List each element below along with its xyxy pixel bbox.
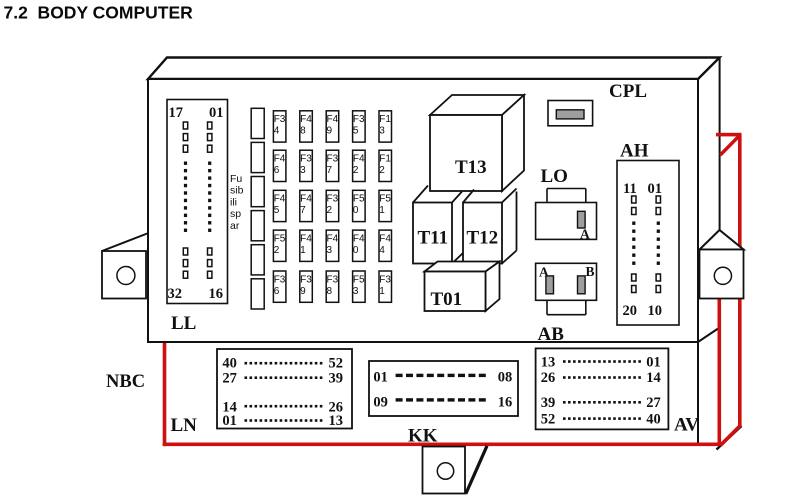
svg-text:T11: T11 — [418, 228, 449, 249]
svg-text:01: 01 — [222, 413, 237, 429]
svg-text:ar: ar — [230, 220, 240, 232]
svg-text:KK: KK — [408, 426, 438, 447]
svg-text:2: 2 — [353, 165, 359, 176]
svg-text:52: 52 — [541, 411, 556, 427]
svg-text:sib: sib — [230, 185, 244, 197]
svg-text:7.2 BODY COMPUTER: 7.2 BODY COMPUTER — [4, 3, 194, 23]
svg-text:01: 01 — [648, 181, 663, 197]
svg-text:F3: F3 — [327, 154, 339, 165]
svg-text:01: 01 — [209, 105, 224, 121]
svg-text:1: 1 — [379, 286, 385, 297]
svg-text:F4: F4 — [379, 233, 391, 244]
svg-text:08: 08 — [498, 370, 513, 386]
svg-text:F1: F1 — [379, 154, 391, 165]
svg-text:8: 8 — [327, 286, 333, 297]
svg-text:17: 17 — [169, 105, 184, 121]
svg-text:F4: F4 — [327, 233, 339, 244]
svg-text:ili: ili — [230, 196, 237, 208]
svg-text:LL: LL — [171, 313, 196, 334]
svg-text:NBC: NBC — [106, 372, 145, 392]
svg-text:3: 3 — [300, 165, 306, 176]
svg-text:1: 1 — [300, 245, 306, 256]
svg-text:01: 01 — [373, 370, 388, 386]
svg-text:3: 3 — [379, 126, 385, 137]
svg-text:4: 4 — [274, 126, 280, 137]
svg-text:39: 39 — [541, 395, 556, 411]
svg-text:F4: F4 — [300, 233, 312, 244]
svg-text:26: 26 — [541, 370, 556, 386]
svg-text:F1: F1 — [379, 114, 391, 125]
svg-text:13: 13 — [329, 413, 344, 429]
svg-text:11: 11 — [623, 181, 637, 197]
svg-text:LO: LO — [541, 166, 568, 187]
svg-text:2: 2 — [327, 205, 333, 216]
svg-text:5: 5 — [274, 205, 280, 216]
svg-text:6: 6 — [274, 165, 280, 176]
svg-text:B: B — [586, 264, 595, 279]
svg-text:16: 16 — [498, 394, 513, 410]
svg-text:F4: F4 — [353, 233, 365, 244]
svg-text:39: 39 — [329, 370, 344, 386]
svg-text:52: 52 — [329, 356, 344, 372]
svg-text:F3: F3 — [327, 274, 339, 285]
svg-text:6: 6 — [274, 286, 280, 297]
svg-text:F5: F5 — [379, 194, 391, 205]
svg-text:F3: F3 — [379, 274, 391, 285]
svg-text:T13: T13 — [455, 157, 487, 178]
svg-text:F5: F5 — [274, 233, 286, 244]
svg-text:0: 0 — [353, 245, 359, 256]
svg-text:09: 09 — [373, 394, 388, 410]
svg-text:13: 13 — [541, 354, 556, 370]
svg-text:40: 40 — [222, 356, 237, 372]
svg-text:27: 27 — [222, 370, 237, 386]
svg-text:F4: F4 — [300, 194, 312, 205]
svg-text:AH: AH — [620, 141, 649, 162]
svg-text:16: 16 — [209, 286, 224, 302]
svg-text:8: 8 — [300, 126, 306, 137]
svg-text:2: 2 — [379, 165, 385, 176]
svg-text:14: 14 — [646, 370, 661, 386]
svg-text:F4: F4 — [300, 114, 312, 125]
svg-text:5: 5 — [353, 126, 359, 137]
svg-text:9: 9 — [327, 126, 333, 137]
svg-text:10: 10 — [648, 303, 663, 319]
svg-text:4: 4 — [379, 245, 385, 256]
svg-text:F4: F4 — [327, 114, 339, 125]
svg-text:27: 27 — [646, 395, 661, 411]
svg-text:sp: sp — [230, 208, 241, 220]
svg-text:20: 20 — [623, 303, 638, 319]
svg-text:3: 3 — [327, 245, 333, 256]
svg-text:40: 40 — [646, 411, 661, 427]
svg-text:3: 3 — [353, 286, 359, 297]
svg-text:T01: T01 — [431, 289, 463, 310]
svg-text:01: 01 — [646, 354, 661, 370]
svg-text:F3: F3 — [300, 274, 312, 285]
svg-text:1: 1 — [379, 205, 385, 216]
svg-text:F4: F4 — [353, 154, 365, 165]
svg-text:2: 2 — [274, 245, 280, 256]
svg-text:F3: F3 — [353, 114, 365, 125]
svg-text:32: 32 — [168, 286, 183, 302]
svg-text:AB: AB — [538, 324, 565, 345]
svg-text:F4: F4 — [274, 194, 286, 205]
svg-text:F5: F5 — [353, 274, 365, 285]
svg-text:T12: T12 — [467, 228, 499, 249]
svg-text:0: 0 — [353, 205, 359, 216]
svg-text:F5: F5 — [353, 194, 365, 205]
svg-text:A: A — [580, 227, 590, 242]
svg-text:CPL: CPL — [609, 81, 647, 102]
svg-text:F4: F4 — [274, 154, 286, 165]
svg-text:7: 7 — [300, 205, 306, 216]
svg-text:F3: F3 — [274, 114, 286, 125]
svg-text:9: 9 — [300, 286, 306, 297]
svg-text:Fu: Fu — [230, 173, 242, 185]
svg-text:F3: F3 — [274, 274, 286, 285]
svg-text:7: 7 — [327, 165, 333, 176]
svg-text:LN: LN — [171, 415, 198, 436]
svg-text:AV: AV — [674, 415, 699, 436]
svg-text:F3: F3 — [300, 154, 312, 165]
svg-text:F3: F3 — [327, 194, 339, 205]
